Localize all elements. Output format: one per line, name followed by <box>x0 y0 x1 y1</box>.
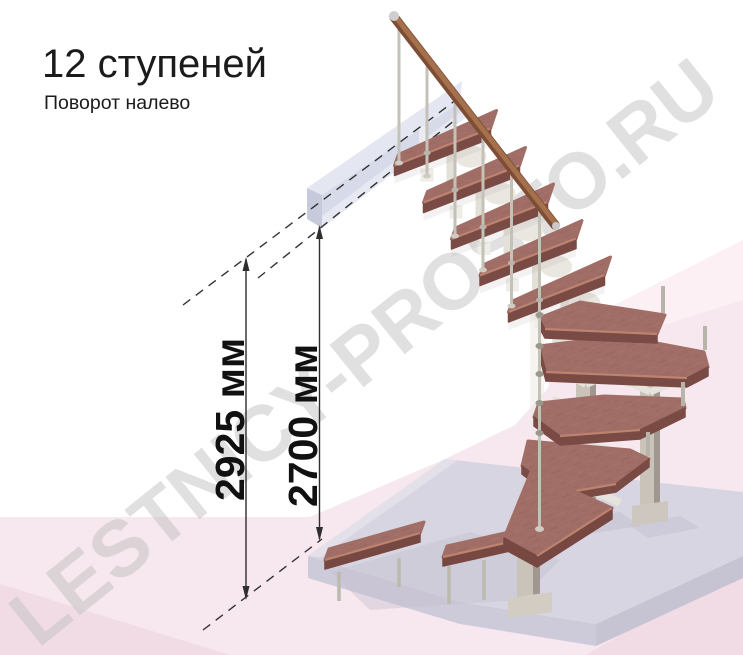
svg-text:Поворот налево: Поворот налево <box>44 92 190 114</box>
svg-text:2700 мм: 2700 мм <box>280 344 326 507</box>
svg-text:2925 мм: 2925 мм <box>207 338 253 501</box>
svg-text:12 ступеней: 12 ступеней <box>42 42 267 86</box>
